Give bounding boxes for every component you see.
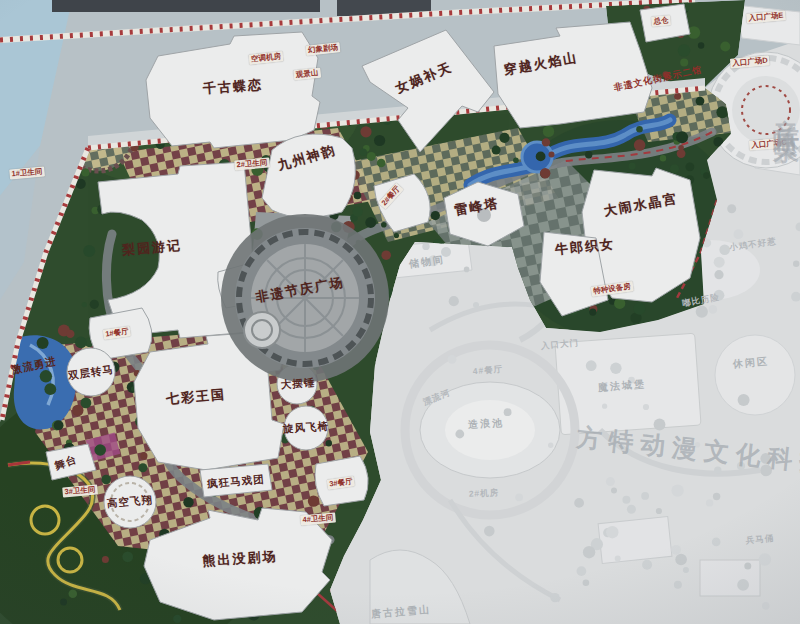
label-jiuzhoushenyun: 九州神韵 xyxy=(276,141,339,175)
label-liyuanyouji: 梨园游记 xyxy=(121,236,182,259)
label-mofachengbao: 魔法城堡 xyxy=(597,377,646,395)
label-xiongchumojuchang: 熊出没剧场 xyxy=(202,547,278,570)
label-wutai: 舞台 xyxy=(53,452,79,473)
label-rukoudamen: 入口大门 xyxy=(541,337,580,352)
label-qiangudielian: 千古蝶恋 xyxy=(202,76,263,98)
label-damaichui: 大摆锤 xyxy=(280,376,315,392)
label-guanjingshan: 观景山 xyxy=(293,68,320,81)
label-niulangzhinv: 牛郎织女 xyxy=(554,235,616,259)
label-xuanfengfeiyi: 旋风飞椅 xyxy=(283,419,330,436)
label-tanggulaxueshan: 唐古拉雪山 xyxy=(371,602,432,621)
label-rukouguangchang-d: 入口广场D xyxy=(730,55,770,68)
label-canting-1: 1#餐厅 xyxy=(103,326,131,340)
label-weishengjian-2: 2#卫生间 xyxy=(234,158,270,171)
label-chuanyuehuoyanshan: 穿越火焰山 xyxy=(503,49,580,80)
label-dubilixian: 嘟比历险 xyxy=(681,292,721,310)
label-canting-3: 3#餐厅 xyxy=(327,476,355,490)
label-fengkuangmaxituan: 疯狂马戏团 xyxy=(207,473,266,492)
label-yinyuepenquan-watermark: 音乐喷泉 xyxy=(770,98,800,122)
label-jifang-2: 2#机房 xyxy=(468,487,499,501)
label-xiaojibuhaore: 小鸡不好惹 xyxy=(729,236,778,254)
label-feiyi-erguan: 非遗文化街展示二馆 xyxy=(613,63,704,94)
label-zaolangchi: 造浪池 xyxy=(468,416,505,432)
label-rukouguangchang-c: 入口广场C xyxy=(749,137,789,150)
label-fangte-watermark: 方特动漫文化科技园 xyxy=(575,421,800,484)
label-tezhongshebeifang: 特种设备房 xyxy=(591,281,633,297)
label-qicaiwangguo: 七彩王国 xyxy=(165,385,226,408)
label-zongcang: 总仓 xyxy=(651,15,671,27)
label-weishengjian-4: 4#卫生间 xyxy=(300,513,336,526)
label-layer: 千古蝶恋女娲补天穿越火焰山九州神韵梨园游记七彩王国熊出没剧场大闹水晶宫牛郎织女雷… xyxy=(0,0,800,624)
label-jiliuyongjin: 激流勇进 xyxy=(10,354,58,377)
label-leifengta: 雷峰塔 xyxy=(453,194,500,220)
label-canting-4: 4#餐厅 xyxy=(472,364,503,379)
label-kongtiaojifang: 空调机房 xyxy=(249,51,284,64)
label-chuwujian: 储物间 xyxy=(408,253,446,272)
label-nvwabutian: 女娲补天 xyxy=(393,58,455,97)
label-weishengjian-1: 1#卫生间 xyxy=(9,167,45,180)
label-piaoliuhe: 漂流河 xyxy=(422,387,453,409)
park-map-photo: 千古蝶恋女娲补天穿越火焰山九州神韵梨园游记七彩王国熊出没剧场大闹水晶宫牛郎织女雷… xyxy=(0,0,800,624)
label-gaokongfeixiang: 高空飞翔 xyxy=(106,493,153,511)
label-canting-2: 2#餐厅 xyxy=(378,182,404,209)
label-weishengjian-3: 3#卫生间 xyxy=(62,485,98,498)
label-bingmayong: 兵马俑 xyxy=(745,533,774,547)
label-shuangcengzhuanma: 双层转马 xyxy=(67,363,115,383)
label-feiyijieqingguangchang: 非遗节庆广场 xyxy=(254,273,346,306)
label-huanxiangjuchang: 幻象剧场 xyxy=(306,42,341,55)
label-rukouguangchang-e: 入口广场E xyxy=(746,10,786,23)
label-danaoshuijinggong: 大闹水晶宫 xyxy=(603,190,680,221)
label-xiuxianqu: 休闲区 xyxy=(732,354,769,371)
